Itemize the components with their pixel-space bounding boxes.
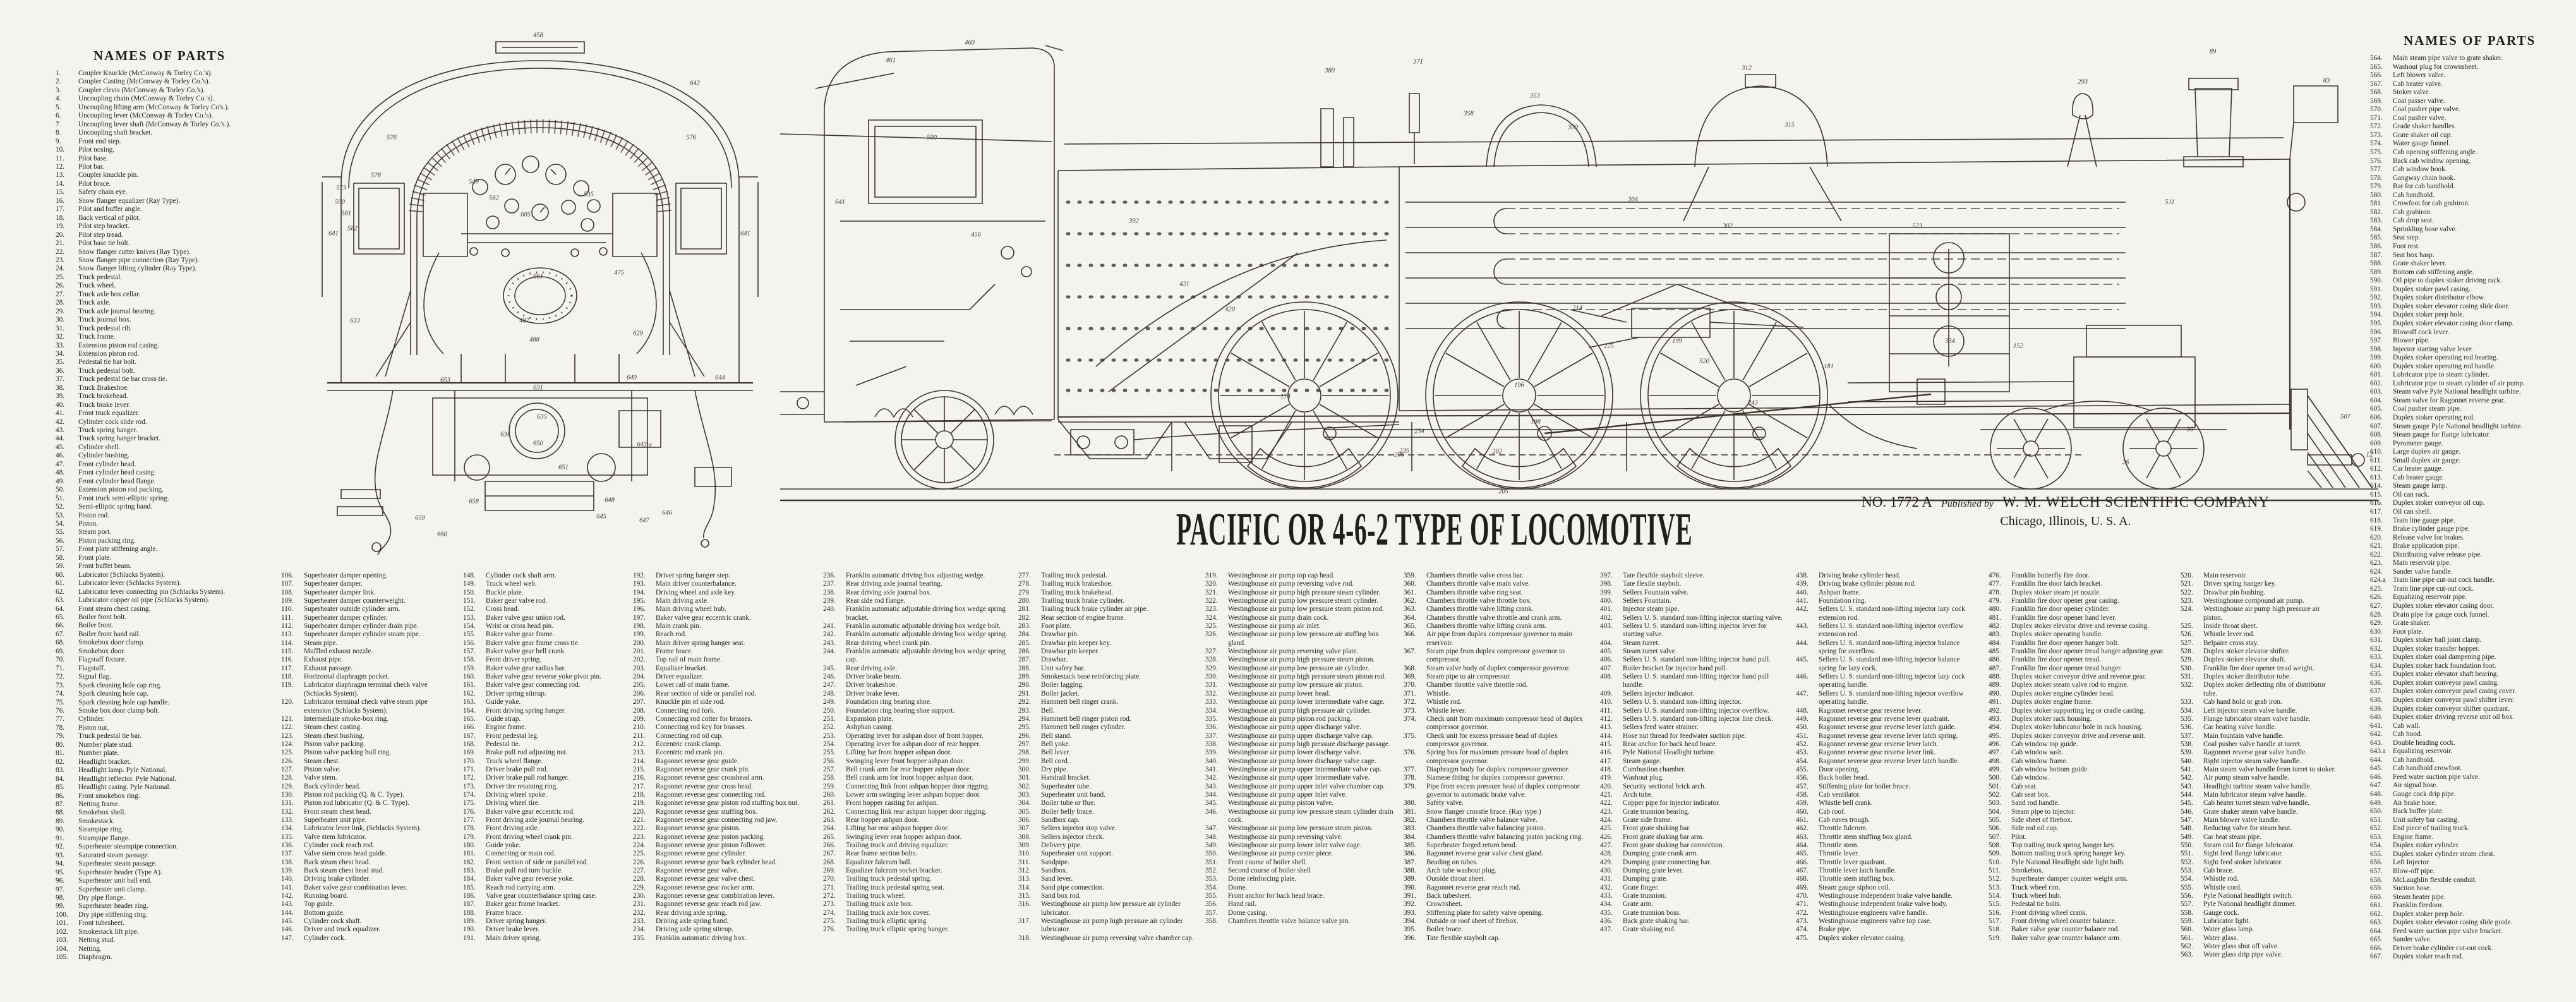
part-label: Westinghouse independent brake valve han… (1819, 892, 1953, 900)
part-item: 160.Baker valve gear reverse yoke pivot … (463, 673, 625, 681)
part-item: 131.Piston rod lubricator (Q. & C. Type)… (281, 799, 453, 807)
part-callout-number: 334 (1945, 338, 1955, 345)
part-label: Sandbox cap. (1041, 816, 1080, 824)
part-item: 92.Superheater steampipe connection. (56, 843, 310, 851)
part-label: Pedestal tie bolts. (2011, 900, 2061, 908)
part-item: 183.Brake pull rod turn buckle. (463, 867, 625, 875)
part-number: 2. (56, 78, 76, 86)
part-label: Ragonnet reverse gear connecting rod jaw… (656, 816, 778, 824)
part-label: Dumping grate. (1623, 875, 1668, 883)
part-number: 512. (1989, 875, 2009, 883)
part-number: 258. (823, 774, 843, 782)
part-callout-number: 643.a (637, 442, 652, 449)
part-item: 557.Pyle National headlight dimmer. (2181, 900, 2337, 908)
part-label: Washout plug. (1623, 774, 1664, 782)
part-label: Baker valve gear counter balance rod. (2011, 926, 2119, 933)
imprint-block: NO. 1772 A Published by W. M. WELCH SCIE… (1860, 494, 2271, 529)
part-label: Ragonnet reverse gear reverse lever latc… (1819, 732, 1958, 740)
part-label: Sellers Fountain valve. (1623, 589, 1688, 596)
part-label: Feed water suction pipe valve bracket. (2393, 927, 2503, 935)
part-number: 304. (1018, 799, 1038, 807)
part-item: 570.Coal pusher pipe valve. (2370, 106, 2571, 114)
part-number: 372. (1404, 698, 1424, 706)
part-item: 65.Boiler front bolt. (56, 613, 310, 622)
part-label: Throttle lever quadrant. (1819, 859, 1886, 866)
part-label: Trailing truck brake cylinder air pipe. (1041, 605, 1148, 613)
part-label: Trailing truck axle box. (846, 900, 913, 908)
part-item: 146.Driver and truck equalizer. (281, 926, 453, 934)
part-item: 488.Duplex stoker conveyor drive and rev… (1989, 673, 2171, 681)
part-item: 442.Sellers U. S. standard non-lifting i… (1796, 605, 1979, 622)
part-number: 23. (56, 257, 76, 265)
part-label: Smokebox door. (78, 648, 125, 655)
part-number: 67. (56, 631, 76, 639)
part-number: 313. (1018, 875, 1038, 883)
part-label: Lower arm swinging lever ashpan hopper d… (846, 791, 981, 799)
part-number: 226. (633, 859, 653, 867)
part-number: 51. (56, 495, 76, 503)
part-label: Lubricator pipe to steam cylinder. (2393, 371, 2489, 378)
part-label: Security sectional brick arch. (1623, 783, 1706, 790)
part-item: 525.Inside throat sheet. (2181, 622, 2337, 631)
part-label: Ragonnet reverse gear valve handle. (2203, 749, 2307, 756)
part-number: 479. (1989, 597, 2009, 605)
part-item: 659.Suction hose. (2370, 884, 2571, 893)
part-item: 643.Double heading cock. (2370, 739, 2571, 748)
part-item: 634.Duplex stoker back foundation foot. (2370, 662, 2571, 671)
part-number: 208. (633, 707, 653, 715)
part-number: 470. (1796, 892, 1816, 900)
part-label: Trailing truck brakeshoe. (1041, 580, 1112, 588)
part-label: Car heating valve handle. (2203, 723, 2276, 731)
part-number: 38. (56, 384, 76, 392)
part-item: 330.Westinghouse air pump high pressure … (1205, 673, 1394, 681)
part-number: 330. (1205, 673, 1225, 681)
part-label: Engine frame. (486, 723, 526, 731)
part-number: 649. (2370, 799, 2390, 808)
part-item: 81.Number plate. (56, 749, 310, 758)
part-number: 424. (1600, 816, 1620, 824)
part-label: Westinghouse air pump center piece. (1228, 850, 1333, 857)
part-item: 401.Injector steam pipe. (1600, 605, 1786, 613)
part-label: Pyle National headlight switch. (2203, 892, 2293, 900)
part-item: 109.Superheater damper counterweight. (281, 597, 453, 605)
part-number: 55. (56, 528, 76, 536)
part-label: Chambers throttle valve lifting crank. (1426, 605, 1534, 613)
part-label: Driver spring hanger. (486, 917, 546, 925)
part-item: 515.Pedestal tie bolts. (1989, 900, 2171, 908)
part-item: 535.Flange lubricator steam valve handle… (2181, 715, 2337, 723)
part-label: Outside or roof sheet of firebox. (1426, 917, 1519, 925)
part-number: 29. (56, 308, 76, 316)
part-label: Superheater damper counter weight arm. (2011, 875, 2128, 883)
part-label: Uncoupling lifting arm (McConway & Torle… (78, 104, 229, 111)
part-label: Baker valve gear reverse yoke. (486, 875, 574, 883)
part-item: 629.Grate shaker. (2370, 619, 2571, 628)
part-item: 386.Ragonnet reverse gear valve chest gl… (1404, 850, 1591, 858)
part-item: 182.Front section of side or parallel ro… (463, 859, 625, 867)
part-number: 78. (56, 724, 76, 732)
part-label: Westinghouse air pump reversing valve ch… (1041, 934, 1194, 942)
part-item: 541.Main steam valve handle from turret … (2181, 766, 2337, 774)
part-label: Duplex stoker engine frame. (2011, 698, 2093, 706)
part-number: 431. (1600, 875, 1620, 883)
part-item: 356.Hand rail. (1205, 900, 1394, 908)
part-label: Westinghouse air pump high pressure stea… (1228, 656, 1375, 663)
part-number: 117. (281, 665, 301, 673)
part-number: 191. (463, 934, 483, 943)
part-item: 168.Pedestal tie. (463, 740, 625, 749)
part-callout-number: 549 (469, 179, 479, 186)
part-item: 392.Crownsheet. (1404, 900, 1591, 908)
part-item: 42.Cylinder cock slide rod. (56, 418, 310, 426)
part-number: 81. (56, 749, 76, 758)
part-label: Ragonnet reverse gear reverse lever link… (1819, 749, 1935, 756)
part-item: 366.Air pipe from duplex compressor gove… (1404, 631, 1591, 648)
part-number: 311. (1018, 859, 1038, 867)
part-label: Hammett bell ringer cylinder. (1041, 723, 1126, 731)
part-number: 247. (823, 681, 843, 689)
part-label: Westinghouse air pump upper discharge va… (1228, 723, 1361, 731)
part-number: 275. (823, 917, 843, 926)
part-label: Ragonnet reverse gear reverse lever latc… (1819, 758, 1959, 765)
part-item: 398.Tate flexile staybolt. (1600, 580, 1786, 588)
part-number: 287. (1018, 656, 1038, 664)
part-label: Exhaust passage. (304, 665, 352, 672)
part-number: 663. (2370, 919, 2390, 927)
part-label: Cylinder cock shaft arm. (486, 572, 557, 579)
part-label: Water gauge funnel. (2393, 140, 2450, 147)
part-item: 184.Baker valve gear reverse yoke. (463, 875, 625, 883)
part-number: 360. (1404, 580, 1424, 588)
part-item: 276.Trailing truck elliptic spring hange… (823, 926, 1009, 934)
part-item: 586.Foot rest. (2370, 243, 2571, 251)
part-label: Chamber throttle valve throttle rod. (1426, 681, 1527, 689)
part-item: 612.Car heater gauge. (2370, 465, 2571, 474)
part-item: 424.Grate side frame. (1600, 816, 1786, 824)
part-label: Uncoupling chain (McConway & Torley Co.'… (78, 95, 214, 102)
part-label: Duplex stoker peep hole. (2393, 311, 2464, 318)
part-label: Whistle lever rod. (2203, 631, 2254, 638)
part-item: 281.Trailing truck brake cylinder air pi… (1018, 605, 1196, 613)
part-number: 188. (463, 909, 483, 917)
part-number: 215. (633, 766, 653, 774)
part-label: Cab opening stiffening angle. (2393, 148, 2477, 156)
part-number: 392. (1404, 900, 1424, 908)
part-number: 466. (1796, 859, 1816, 867)
part-number: 339. (1205, 749, 1225, 757)
part-item: 350.Westinghouse air pump center piece. (1205, 850, 1394, 858)
part-callout-number: 648 (605, 497, 615, 504)
part-label: Baker valve gear frame cross tie. (486, 639, 580, 647)
part-item: 25.Truck pedestal. (56, 274, 310, 282)
part-item: 354.Dome. (1205, 884, 1394, 892)
part-item: 547.Main blower valve handle. (2181, 816, 2337, 824)
part-item: 485.Franklin fire door opener tread hang… (1989, 648, 2171, 656)
part-item: 426.Front grate shaking bar arm. (1600, 833, 1786, 842)
part-number: 21. (56, 239, 76, 248)
part-label: Sellers injector check. (1041, 833, 1104, 841)
part-label: Westinghouse air pump top cap head. (1228, 572, 1335, 579)
part-label: Boiler front. (78, 622, 114, 629)
part-label: Coal pusher steam pipe. (2393, 405, 2462, 413)
part-callout-number: 234 (1414, 428, 1424, 435)
part-item: 637.Duplex stoker conveyor pawl casing c… (2370, 687, 2571, 696)
part-number: 437. (1600, 926, 1620, 934)
part-number: 369. (1404, 673, 1424, 681)
part-item: 221.Ragonnet reverse gear connecting rod… (633, 816, 814, 824)
part-label: Pilot bar. (78, 163, 104, 171)
part-item: 147.Cylinder cock. (281, 934, 453, 943)
part-number: 453. (1796, 749, 1816, 757)
part-label: Driver brake pull rod hanger. (486, 774, 569, 782)
part-item: 431.Dumping grate. (1600, 875, 1786, 883)
part-number: 65. (56, 613, 76, 622)
part-item: 473.Westinghouse engineers valve top cas… (1796, 917, 1979, 926)
part-item: 90.Steampipe ring. (56, 826, 310, 834)
part-item: 429.Dumping grate connecting bar. (1600, 859, 1786, 867)
part-number: 164. (463, 707, 483, 715)
part-item: 98.Dry pipe flange. (56, 894, 310, 902)
part-number: 352. (1205, 867, 1225, 875)
part-number: 232. (633, 909, 653, 917)
part-item: 438.Driving brake cylinder head. (1796, 572, 1979, 580)
part-item: 423.Grate trunnion bearing. (1600, 808, 1786, 816)
part-label: Crowfoot for cab grabiron. (2393, 200, 2470, 207)
part-label: Franklin firedoor. (2393, 902, 2443, 909)
part-number: 499. (1989, 766, 2009, 774)
part-number: 14. (56, 180, 76, 188)
part-label: Duplex stoker peep hole. (2393, 910, 2464, 918)
part-item: 563.Water glass drip pipe valve. (2181, 951, 2337, 959)
part-number: 308. (1018, 833, 1038, 842)
part-number: 185. (463, 884, 483, 892)
part-number: 310. (1018, 850, 1038, 858)
part-item: 641.Cab wall. (2370, 722, 2571, 731)
part-item: 34.Extension piston rod. (56, 350, 310, 358)
part-label: Pilot and buffer angle. (78, 205, 142, 213)
part-item: 602.Lubricator pipe to steam cylinder of… (2370, 380, 2571, 389)
part-number: 211. (633, 732, 653, 740)
part-label: Rear section of engine frame. (1041, 614, 1125, 622)
part-label: Front steam chest head. (304, 808, 371, 816)
part-item: 189.Driver spring hanger. (463, 917, 625, 926)
part-label: Reducing valve for steam heat. (2203, 824, 2292, 832)
part-label: Snow flanger pipe connection (Ray Type). (78, 257, 200, 264)
part-number: 358. (1205, 917, 1225, 926)
part-item: 257.Bell crank arm for rear hopper ashpa… (823, 766, 1009, 774)
part-number: 244. (823, 648, 843, 656)
part-number: 142. (281, 892, 301, 900)
part-item: 496.Cab window top guide. (1989, 740, 2171, 749)
part-number: 383. (1404, 824, 1424, 833)
part-label: Cylinder cock reach rod. (304, 842, 375, 849)
part-label: Smokebox shell. (78, 809, 126, 816)
part-label: Franklin automatic adjustable driving bo… (846, 622, 1001, 630)
part-item: 45.Cylinder shell. (56, 444, 310, 452)
part-label: Rear side rod flange. (846, 597, 905, 605)
part-number: 92. (56, 843, 76, 851)
part-item: 638.Duplex stoker conveyor pawl shifter … (2370, 696, 2571, 705)
part-item: 258.Bell crank arm for front hopper ashp… (823, 774, 1009, 782)
part-item: 419.Washout plug. (1600, 774, 1786, 782)
part-callout-number: 641 (740, 231, 750, 238)
part-item: 422.Copper pipe for injector indicator. (1600, 799, 1786, 807)
part-label: Blowoff cock lever. (2393, 329, 2449, 336)
part-number: 268. (823, 859, 843, 867)
part-label: Cab window top guide. (2011, 740, 2078, 748)
part-item: 139.Back steam chest head stud. (281, 867, 453, 875)
part-item: 282.Rear section of engine frame. (1018, 614, 1196, 622)
part-label: Pyle National headlight dimmer. (2203, 900, 2296, 908)
part-label: Guide yoke. (486, 698, 521, 706)
part-number: 199. (633, 631, 653, 639)
part-number: 237. (823, 580, 843, 588)
part-number: 290. (1018, 681, 1038, 689)
part-label: Duplex stoker coal dampening pipe. (2393, 653, 2496, 661)
part-callout-number: 590 (335, 199, 345, 206)
part-number: 32. (56, 333, 76, 341)
part-label: Trailing truck pedestal. (1041, 572, 1107, 579)
part-item: 520.Main reservoir. (2181, 572, 2337, 580)
part-number: 262. (823, 808, 843, 816)
part-number: 640. (2370, 713, 2390, 722)
part-label: Cylinder. (78, 715, 105, 723)
part-item: 304.Boiler tube or flue. (1018, 799, 1196, 807)
part-label: Truck axle journal bearing. (78, 308, 156, 315)
part-number: 496. (1989, 740, 2009, 749)
part-number: 266. (823, 842, 843, 850)
part-label: Driving brake cylinder head. (1819, 572, 1901, 579)
part-item: 425.Front grate shaking bar. (1600, 824, 1786, 833)
part-item: 196.Main driving wheel hub. (633, 605, 814, 613)
part-callout-number: 461 (886, 57, 896, 64)
part-item: 521.Driver spring hanger key. (2181, 580, 2337, 588)
part-label: Foundation ring. (1819, 597, 1866, 605)
part-label: Connecting link rear ashpan hopper door … (846, 808, 987, 816)
part-number: 49. (56, 478, 76, 486)
part-label: Cab window bottom guide. (2011, 766, 2089, 773)
part-item: 545.Cab heater turret steam valve handle… (2181, 799, 2337, 807)
part-item: 96.Superheater unit ball end. (56, 877, 310, 885)
part-label: Trailing truck wheel. (846, 892, 906, 900)
part-item: 33.Extension piston rod casing. (56, 342, 310, 350)
part-label: Safety valve. (1426, 799, 1464, 807)
part-number: 76. (56, 707, 76, 715)
part-label: Piston nut. (78, 724, 109, 732)
part-item: 241.Franklin automatic adjustable drivin… (823, 622, 1009, 631)
parts-column-11: 520.Main reservoir.521.Driver spring han… (2181, 572, 2337, 960)
part-label: Cylinder bushing. (78, 452, 129, 459)
part-number: 150. (463, 589, 483, 597)
part-callout-number: 205 (1498, 488, 1508, 495)
part-item: 167.Front pedestal leg. (463, 732, 625, 740)
part-item: 619.Brake cylinder gauge pipe. (2370, 525, 2571, 534)
part-label: Main driver spring. (486, 934, 541, 942)
part-number: 420. (1600, 783, 1620, 791)
part-label: Cab ventilator. (1819, 791, 1861, 799)
part-number: 147. (281, 934, 301, 943)
left-parts-list: 1.Coupler Knuckle (McConway & Torley Co.… (56, 69, 310, 962)
part-number: 332. (1205, 690, 1225, 698)
part-item: 599.Duplex stoker operating rod bearing. (2370, 354, 2571, 363)
part-label: Baker valve gear radius bar. (486, 665, 565, 672)
part-number: 634. (2370, 662, 2390, 671)
part-number: 129. (281, 783, 301, 791)
part-item: 9.Front end step. (56, 138, 310, 146)
part-number: 447. (1796, 690, 1816, 698)
part-item: 203.Equalizer bracket. (633, 665, 814, 673)
catalog-number: NO. 1772 A (1862, 494, 1932, 510)
part-item: 118.Horizontal diaphragm pocket. (281, 673, 453, 681)
part-number: 9. (56, 138, 76, 146)
part-label: Lubricator terminal check valve steam pi… (304, 698, 428, 714)
part-item: 513.Truck wheel rim. (1989, 884, 2171, 892)
part-item: 530.Franklin fire door opener tread weig… (2181, 665, 2337, 673)
part-item: 507.Pilot. (1989, 833, 2171, 842)
part-label: Cab heater turret steam valve handle. (2203, 799, 2309, 807)
sandbox (1683, 75, 1841, 221)
part-callout-number: 487 (519, 318, 529, 325)
part-number: 632. (2370, 645, 2390, 654)
part-label: Coal pusher valve. (2393, 114, 2446, 122)
part-number: 468. (1796, 875, 1816, 883)
part-number: 553. (2181, 867, 2201, 875)
part-label: Back boiler head. (1819, 774, 1869, 782)
part-label: Smokestack. (78, 818, 114, 825)
part-item: 205.Lower rail of main frame. (633, 681, 814, 689)
part-number: 347. (1205, 824, 1225, 833)
part-number: 430. (1600, 867, 1620, 875)
part-number: 425. (1600, 824, 1620, 833)
part-label: Spark cleaning hole cap handle. (78, 699, 169, 706)
part-item: 367.Steam pipe from duplex compressor go… (1404, 648, 1591, 665)
part-item: 6.Uncoupling lever (McConway & Torley Co… (56, 112, 310, 120)
part-number: 402. (1600, 614, 1620, 622)
part-label: Franklin automatic driving box adjusting… (846, 572, 985, 579)
part-label: Franklin fire door opener gear casing. (2011, 597, 2119, 605)
underframe (337, 390, 731, 516)
part-number: 415. (1600, 740, 1620, 749)
part-number: 449. (1796, 715, 1816, 723)
part-number: 422. (1600, 799, 1620, 807)
part-label: Rear driving axle spring. (656, 909, 726, 917)
part-item: 247.Driver brakeshoe. (823, 681, 1009, 689)
part-label: Frame brace. (656, 648, 693, 655)
part-label: Suction hose. (2393, 884, 2431, 892)
part-item: 415.Rear anchor for back head brace. (1600, 740, 1786, 749)
part-item: 224.Ragonnet reverse gear piston followe… (633, 842, 814, 850)
part-item: 478.Duplex stoker steam jet nozzle. (1989, 589, 2171, 597)
part-item: 665.Sander valve. (2370, 936, 2571, 945)
part-label: Driver tire retaining ring. (486, 783, 558, 790)
part-item: 88.Smokebox shell. (56, 809, 310, 817)
part-callout-number: 371 (1413, 59, 1423, 66)
part-label: Wrist or cross head pin. (486, 622, 553, 630)
part-number: 168. (463, 740, 483, 749)
part-item: 591.Duplex stoker pawl casing. (2370, 286, 2571, 294)
part-label: Duplex stoker elevator casing door. (2393, 602, 2494, 610)
part-number: 373. (1404, 707, 1424, 715)
part-label: Grate trunnion bearing. (1623, 808, 1690, 816)
part-item: 610.Large duplex air gauge. (2370, 448, 2571, 457)
part-label: Lifting bar front hopper ashpan door. (846, 749, 952, 756)
part-label: Cab window frame. (2011, 758, 2067, 765)
part-label: Driving axle spring band. (656, 917, 728, 925)
part-item: 368.Steam valve body of duplex compresso… (1404, 665, 1591, 673)
part-callout-number: 30 (2187, 426, 2194, 433)
part-item: 141.Baker valve gear combination lever. (281, 884, 453, 892)
